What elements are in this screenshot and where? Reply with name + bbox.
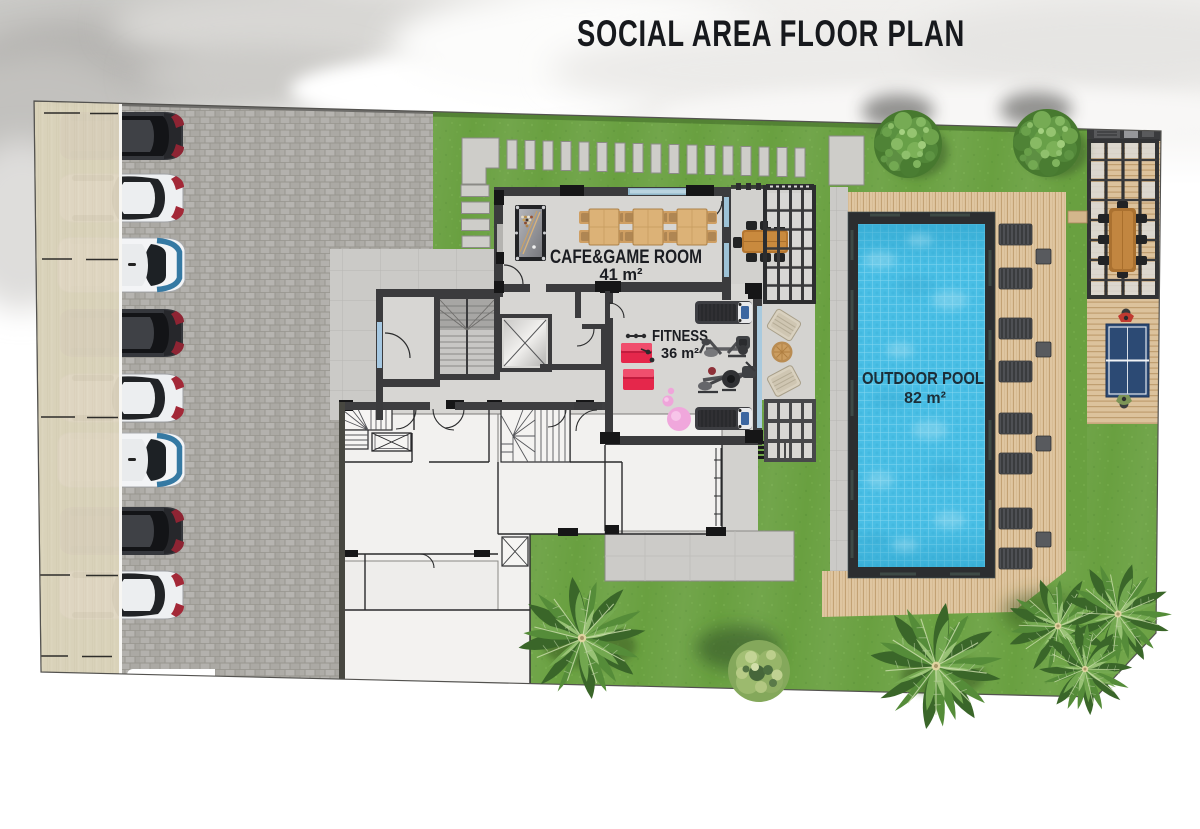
- svg-text:36 m²: 36 m²: [661, 346, 699, 362]
- svg-text:82 m²: 82 m²: [904, 390, 946, 407]
- svg-text:41 m²: 41 m²: [599, 266, 643, 284]
- svg-text:FITNESS: FITNESS: [652, 328, 708, 345]
- svg-text:SOCIAL AREA FLOOR PLAN: SOCIAL AREA FLOOR PLAN: [577, 13, 965, 54]
- svg-text:CAFE&GAME ROOM: CAFE&GAME ROOM: [550, 247, 702, 268]
- svg-text:OUTDOOR POOL: OUTDOOR POOL: [862, 368, 984, 388]
